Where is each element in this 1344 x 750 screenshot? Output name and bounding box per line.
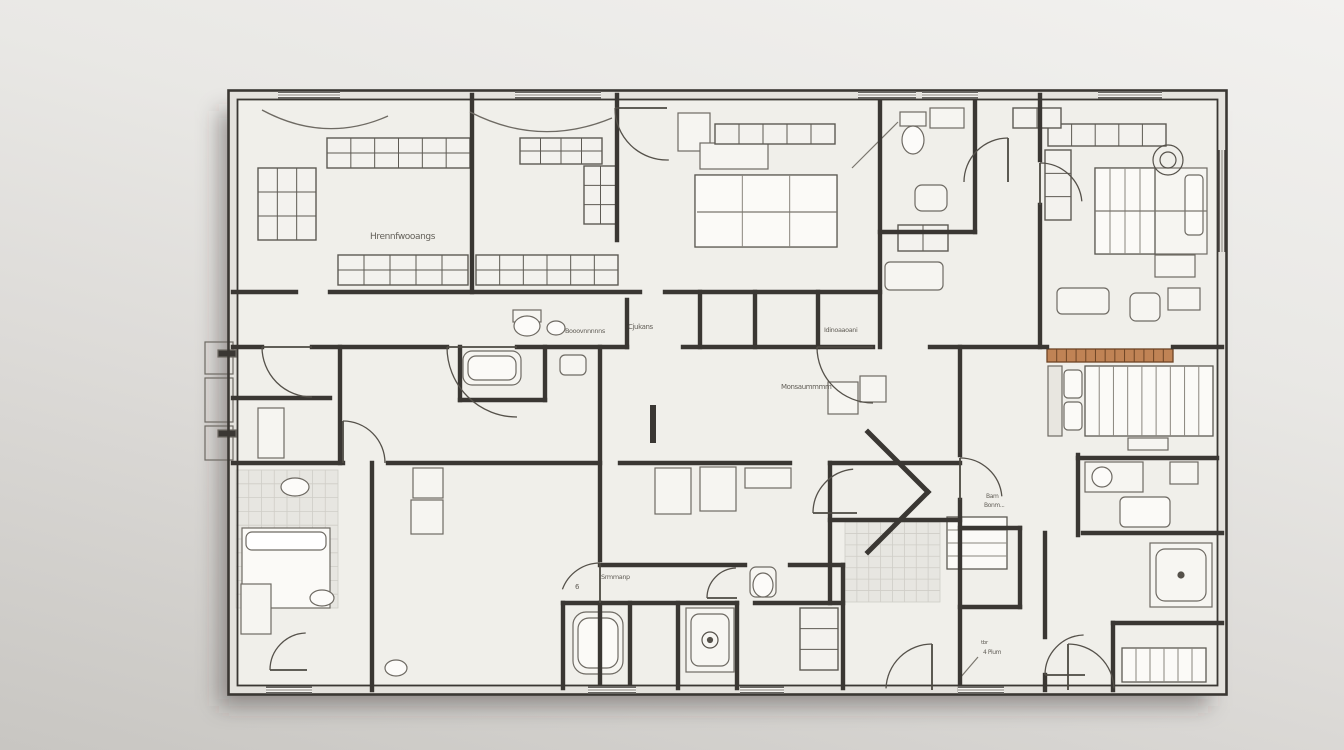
room-label: Idinoaaoani xyxy=(824,326,858,334)
fixture xyxy=(547,321,565,335)
cabinet xyxy=(715,124,835,144)
furniture-item xyxy=(745,468,791,488)
furniture-item xyxy=(1057,288,1109,314)
room-label: Monsaummmm xyxy=(781,383,832,391)
fixture xyxy=(902,126,924,154)
furniture-item xyxy=(218,350,236,357)
striped-item xyxy=(1085,366,1213,436)
furniture-item xyxy=(1185,175,1203,235)
furniture-item xyxy=(1120,497,1170,527)
furniture-item xyxy=(241,584,271,634)
furniture-item xyxy=(258,408,284,458)
furniture-item xyxy=(1130,293,1160,321)
furniture-item xyxy=(900,112,926,126)
furniture-item xyxy=(1155,255,1195,277)
furniture-item xyxy=(860,376,886,402)
cabinet xyxy=(258,168,316,240)
furniture-item xyxy=(700,143,768,169)
furniture-item xyxy=(915,185,947,211)
furniture-item xyxy=(218,430,236,437)
furniture-item xyxy=(930,108,964,128)
room-label: Bonm... xyxy=(984,502,1005,509)
furniture-item xyxy=(885,262,943,290)
cabinet xyxy=(1045,150,1071,220)
fixture xyxy=(753,573,773,597)
furniture-item xyxy=(655,468,691,514)
furniture-item xyxy=(1168,288,1200,310)
striped-item xyxy=(695,175,837,247)
furniture-item xyxy=(700,467,736,511)
fixture xyxy=(1092,467,1112,487)
furniture-item xyxy=(828,382,858,414)
furniture-item xyxy=(413,468,443,498)
fixture xyxy=(514,316,540,336)
furniture-item xyxy=(1170,462,1198,484)
floor-plan: HrennfwooangsBooovnnnnnsCjukansIdinoaaoa… xyxy=(0,0,1344,750)
room-label: Cjukans xyxy=(628,323,654,331)
room-label: Srmmanp xyxy=(601,573,630,581)
furniture-item xyxy=(1064,402,1082,430)
room-label: tbr xyxy=(981,640,989,646)
fixture xyxy=(281,478,309,496)
furniture-item xyxy=(1128,438,1168,450)
fixture xyxy=(310,590,334,606)
furniture-item xyxy=(560,355,586,375)
room-label: Hrennfwooangs xyxy=(370,232,436,242)
floor-plan-image: { "scene": {"width":1344,"height":750}, … xyxy=(0,0,1344,750)
dot xyxy=(708,638,713,643)
cabinet xyxy=(1048,124,1166,146)
room-label: Bam xyxy=(986,493,999,500)
fixture xyxy=(385,660,407,676)
furniture-item xyxy=(246,532,326,550)
room-label: 4 Pium xyxy=(983,649,1002,656)
dot xyxy=(1178,572,1184,578)
furniture-item xyxy=(1064,370,1082,398)
furniture-item xyxy=(1048,366,1062,436)
furniture-item xyxy=(468,356,516,380)
furniture-item xyxy=(411,500,443,534)
room-label: Booovnnnnns xyxy=(565,327,606,335)
cabinet xyxy=(800,608,838,670)
